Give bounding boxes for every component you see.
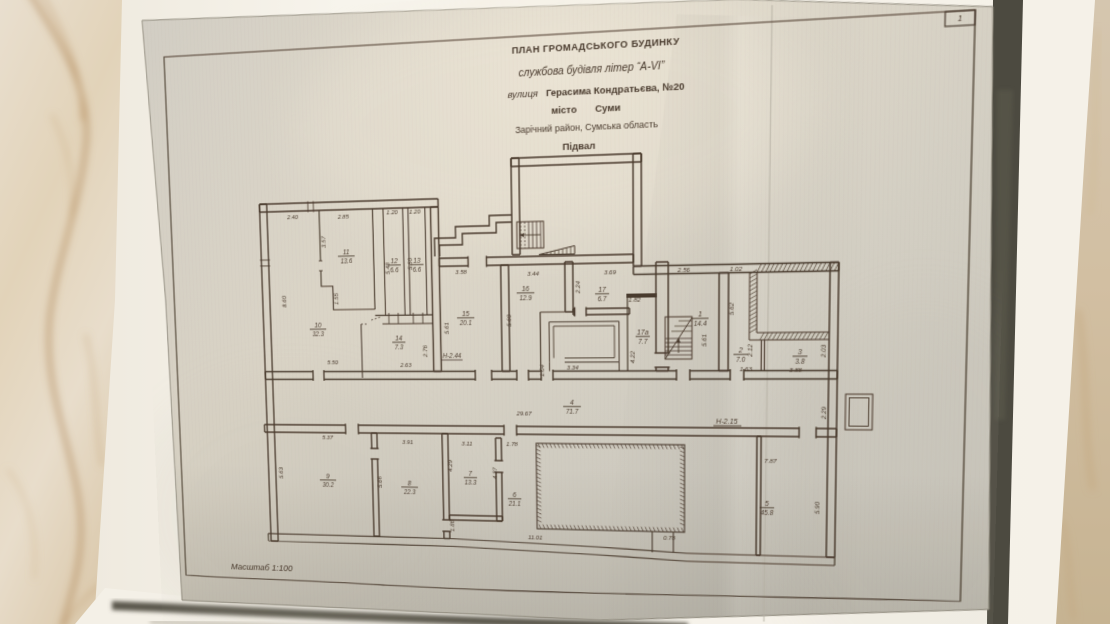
svg-text:5.60: 5.60 — [507, 314, 513, 327]
svg-text:3.69: 3.69 — [604, 270, 617, 277]
svg-text:5.66: 5.66 — [378, 475, 384, 487]
svg-text:2.12: 2.12 — [748, 343, 755, 358]
svg-text:2.24: 2.24 — [576, 281, 583, 295]
svg-text:1.20: 1.20 — [409, 210, 421, 217]
svg-text:13.3: 13.3 — [465, 480, 478, 486]
svg-text:Н-2.15: Н-2.15 — [716, 418, 738, 426]
svg-text:3.91: 3.91 — [402, 440, 413, 446]
svg-text:2.03: 2.03 — [821, 344, 828, 359]
svg-text:32.3: 32.3 — [312, 332, 324, 338]
svg-text:6: 6 — [513, 492, 517, 499]
svg-text:4.37: 4.37 — [493, 467, 499, 480]
svg-text:5: 5 — [765, 500, 770, 508]
svg-text:3.58: 3.58 — [455, 270, 468, 277]
svg-text:7.0: 7.0 — [736, 357, 746, 364]
svg-text:1.78: 1.78 — [506, 442, 519, 448]
svg-text:30.2: 30.2 — [322, 482, 334, 488]
svg-text:13.6: 13.6 — [341, 259, 353, 266]
svg-text:17а: 17а — [637, 329, 649, 337]
svg-text:3.88: 3.88 — [789, 368, 803, 375]
svg-text:4.22: 4.22 — [630, 350, 637, 363]
svg-text:1.20: 1.20 — [386, 210, 398, 217]
svg-text:2.56: 2.56 — [676, 267, 690, 274]
svg-text:7: 7 — [468, 471, 472, 478]
svg-text:12: 12 — [390, 258, 398, 266]
svg-text:29.67: 29.67 — [516, 412, 533, 418]
svg-text:Підвал: Підвал — [562, 140, 595, 153]
svg-text:Масштаб 1:100: Масштаб 1:100 — [231, 561, 293, 573]
svg-text:8: 8 — [408, 480, 412, 487]
svg-text:2: 2 — [738, 347, 744, 355]
svg-text:13: 13 — [413, 257, 421, 265]
svg-text:3.57: 3.57 — [321, 235, 327, 248]
svg-text:7.7: 7.7 — [638, 339, 648, 346]
svg-text:7.3: 7.3 — [395, 345, 404, 351]
svg-text:2.40: 2.40 — [286, 215, 299, 222]
svg-text:2.63: 2.63 — [399, 363, 412, 369]
svg-text:1: 1 — [698, 311, 702, 319]
svg-text:5.48: 5.48 — [385, 261, 391, 274]
svg-text:3: 3 — [798, 349, 803, 357]
svg-text:5.50: 5.50 — [327, 360, 339, 366]
svg-text:3.8: 3.8 — [795, 359, 805, 366]
svg-text:2.76: 2.76 — [423, 344, 429, 358]
svg-text:11.01: 11.01 — [528, 535, 543, 542]
svg-text:3.44: 3.44 — [527, 271, 539, 278]
svg-text:1.82: 1.82 — [628, 298, 641, 305]
svg-text:15: 15 — [462, 311, 470, 319]
svg-text:5.63: 5.63 — [279, 466, 285, 478]
svg-text:2.29: 2.29 — [821, 406, 828, 421]
svg-text:0.78: 0.78 — [663, 536, 676, 543]
svg-text:12.9: 12.9 — [519, 295, 532, 302]
svg-text:5.61: 5.61 — [444, 322, 450, 334]
svg-text:3.11: 3.11 — [461, 441, 472, 447]
svg-text:71.7: 71.7 — [566, 409, 579, 415]
svg-text:6.7: 6.7 — [598, 296, 608, 303]
svg-text:20.1: 20.1 — [459, 320, 472, 327]
svg-text:5.62: 5.62 — [729, 302, 736, 316]
svg-text:1.04: 1.04 — [540, 365, 546, 377]
svg-text:8.60: 8.60 — [282, 295, 288, 308]
svg-text:22.3: 22.3 — [403, 489, 416, 495]
svg-text:16: 16 — [522, 286, 530, 294]
svg-text:9: 9 — [326, 473, 330, 480]
svg-text:17: 17 — [598, 286, 606, 294]
svg-text:11: 11 — [343, 249, 350, 257]
svg-text:5.90: 5.90 — [815, 501, 822, 514]
svg-text:14: 14 — [395, 335, 403, 342]
svg-text:7.87: 7.87 — [764, 459, 778, 466]
svg-text:4: 4 — [570, 399, 574, 407]
svg-text:21.1: 21.1 — [508, 501, 521, 508]
svg-text:5.50: 5.50 — [408, 257, 414, 270]
svg-text:Н-2.44: Н-2.44 — [443, 354, 462, 360]
svg-text:2.85: 2.85 — [337, 214, 350, 221]
svg-text:1: 1 — [958, 15, 963, 24]
svg-text:5.37: 5.37 — [322, 436, 334, 442]
svg-text:45.8: 45.8 — [760, 510, 774, 517]
svg-text:1.63: 1.63 — [740, 367, 754, 374]
svg-text:1.86: 1.86 — [450, 519, 456, 532]
svg-text:3.34: 3.34 — [567, 365, 579, 372]
svg-text:10: 10 — [314, 322, 322, 329]
svg-text:5.61: 5.61 — [702, 334, 709, 347]
svg-text:14.4: 14.4 — [694, 321, 708, 328]
svg-text:1.55: 1.55 — [334, 292, 340, 305]
svg-text:1.02: 1.02 — [730, 266, 744, 273]
svg-text:4.29: 4.29 — [448, 459, 454, 472]
